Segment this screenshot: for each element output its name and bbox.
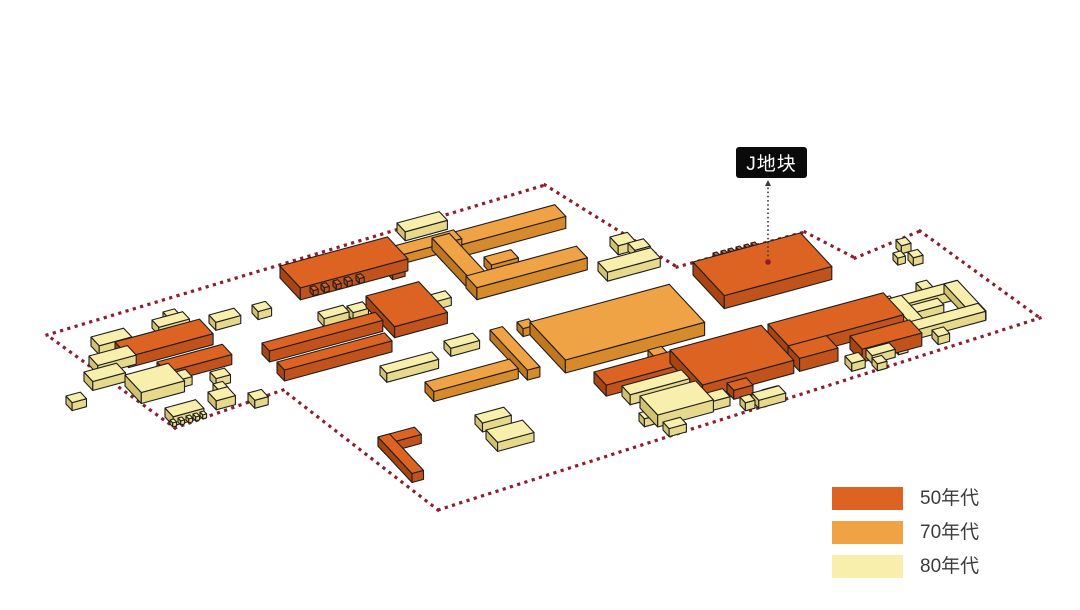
legend-swatch-80 xyxy=(832,555,903,578)
leader-anchor-dot xyxy=(765,259,771,265)
leader-arrowhead xyxy=(765,180,771,186)
legend-row-50: 50年代 xyxy=(832,487,979,510)
building-era-80 xyxy=(908,249,923,265)
building-era-80 xyxy=(193,413,200,421)
building-era-80 xyxy=(380,352,439,382)
building-era-80 xyxy=(178,417,185,425)
legend-label: 80年代 xyxy=(920,555,979,578)
building-era-80 xyxy=(170,419,177,427)
legend-swatch-50 xyxy=(832,487,903,510)
buildings-layer xyxy=(66,205,986,483)
legend-row-80: 80年代 xyxy=(832,555,979,578)
building-era-80 xyxy=(208,387,235,410)
building-era-80 xyxy=(209,308,241,330)
building-era-50 xyxy=(693,233,832,309)
legend-row-70: 70年代 xyxy=(832,521,979,544)
legend-label: 50年代 xyxy=(920,487,979,510)
plot-label-text: J地块 xyxy=(746,149,797,176)
building-era-80 xyxy=(66,392,87,411)
building-era-80 xyxy=(752,386,786,409)
building-era-80 xyxy=(444,333,480,356)
building-era-80 xyxy=(252,301,272,319)
building-era-80 xyxy=(248,389,268,408)
building-era-80 xyxy=(186,415,193,423)
site-diagram: J地块 50年代70年代80年代 xyxy=(0,0,1080,610)
legend: 50年代70年代80年代 xyxy=(832,487,979,589)
plot-label: J地块 xyxy=(736,147,807,178)
building-era-70 xyxy=(466,246,587,300)
legend-label: 70年代 xyxy=(920,521,979,544)
building-era-80 xyxy=(200,411,207,419)
legend-swatch-70 xyxy=(832,521,903,544)
